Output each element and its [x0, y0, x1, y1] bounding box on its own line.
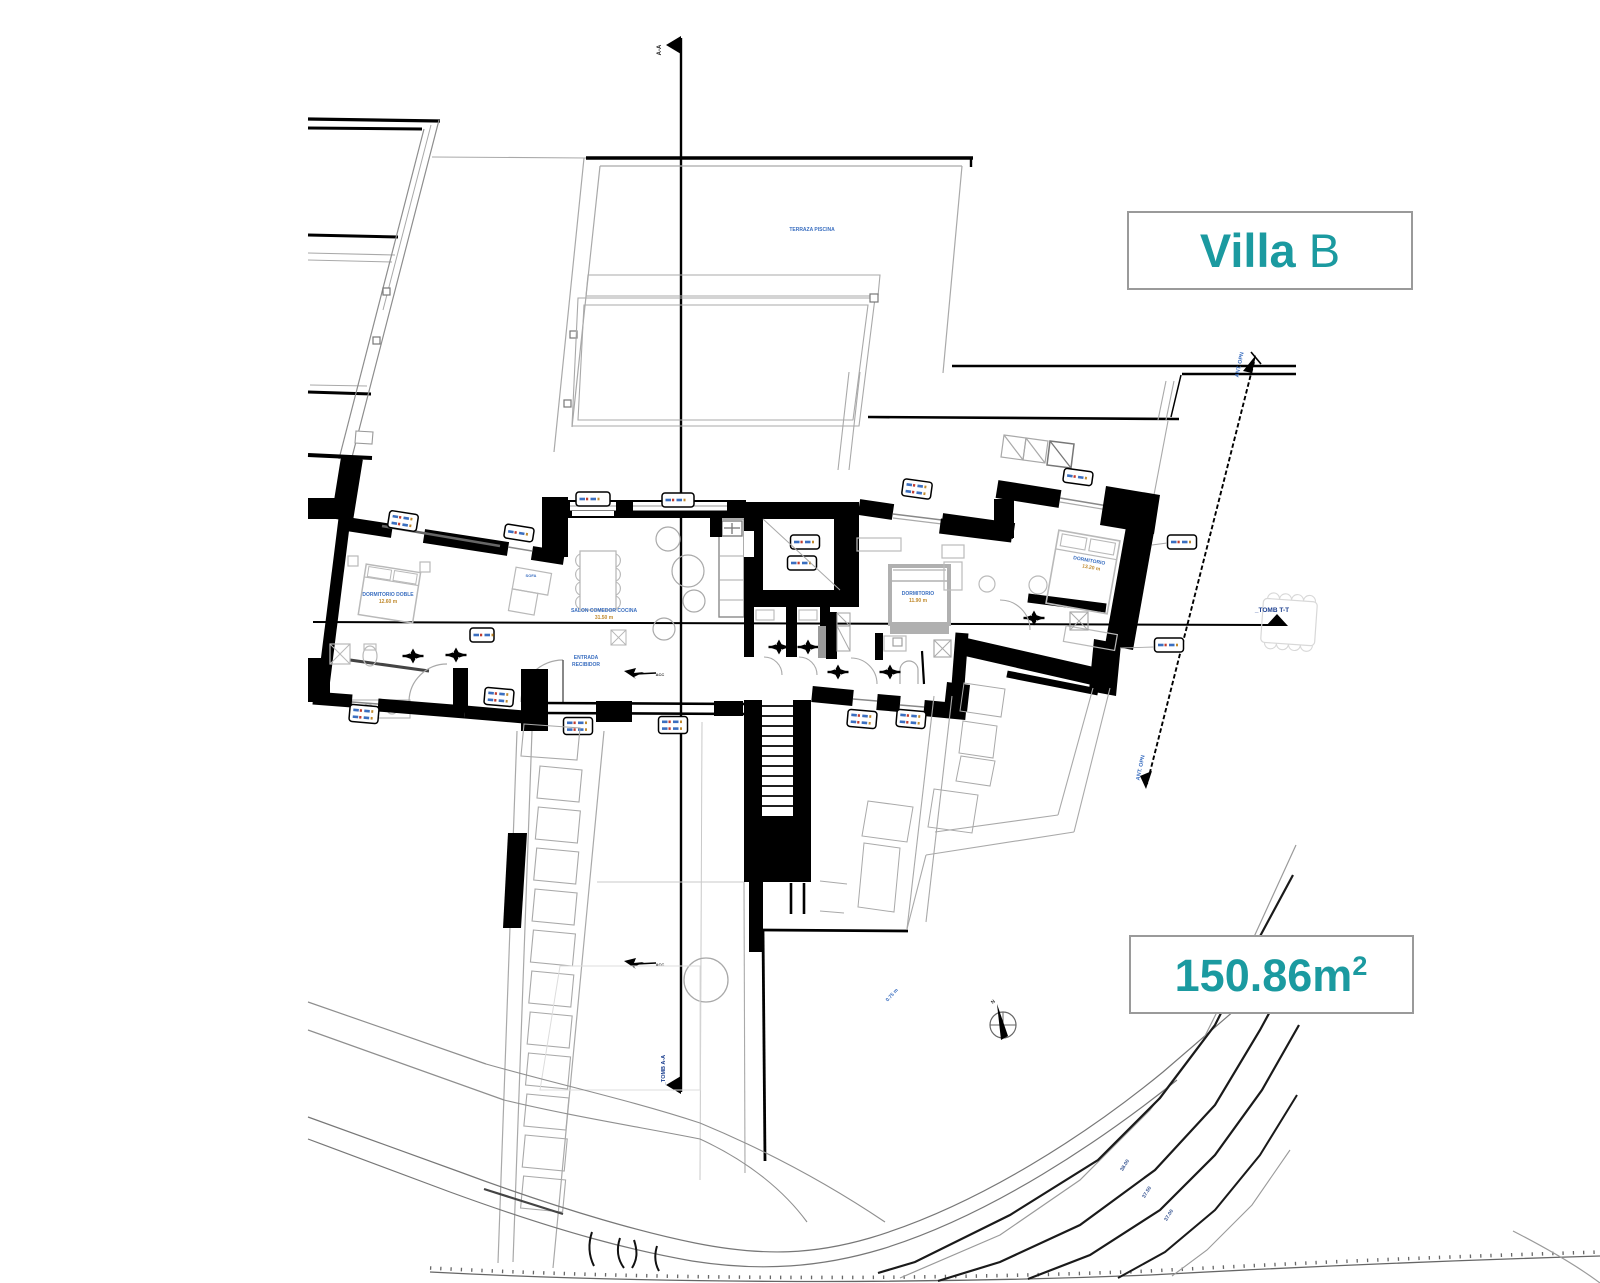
svg-text:RECIBIDOR: RECIBIDOR — [572, 662, 600, 668]
svg-text:_TOMB A-A: _TOMB A-A — [661, 1055, 667, 1086]
svg-text:31.50 m: 31.50 m — [595, 615, 614, 621]
svg-text:150.86m2: 150.86m2 — [1175, 950, 1368, 1001]
svg-text:ACC: ACC — [656, 672, 665, 677]
svg-text:11.90 m: 11.90 m — [909, 598, 928, 604]
svg-text:12.60 m: 12.60 m — [379, 599, 398, 605]
svg-text:ENTRADA: ENTRADA — [574, 655, 599, 661]
svg-text:SALON COMEDOR COCINA: SALON COMEDOR COCINA — [571, 608, 638, 614]
svg-text:_TOMB T-T: _TOMB T-T — [1254, 607, 1289, 614]
svg-text:Villa B: Villa B — [1200, 224, 1340, 277]
svg-text:SOFA: SOFA — [526, 573, 537, 578]
svg-text:TERRAZA PISCINA: TERRAZA PISCINA — [789, 227, 835, 233]
svg-text:DORMITORIO: DORMITORIO — [902, 591, 935, 597]
svg-text:A-A: A-A — [657, 44, 663, 55]
svg-text:DORMITORIO DOBLE: DORMITORIO DOBLE — [362, 592, 414, 598]
